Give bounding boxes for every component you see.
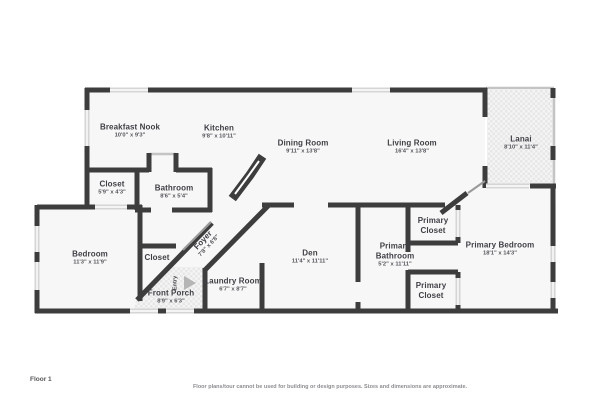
lanai-hatch: [487, 90, 553, 186]
floor-label: Floor 1: [30, 376, 52, 383]
floor-fill: [37, 90, 556, 311]
disclaimer-text: Floor plans/tour cannot be used for buil…: [0, 384, 600, 390]
floorplan-drawing: [0, 0, 600, 400]
floorplan-page: Breakfast Nook 10'0" x 9'3" Kitchen 9'8"…: [0, 0, 600, 400]
